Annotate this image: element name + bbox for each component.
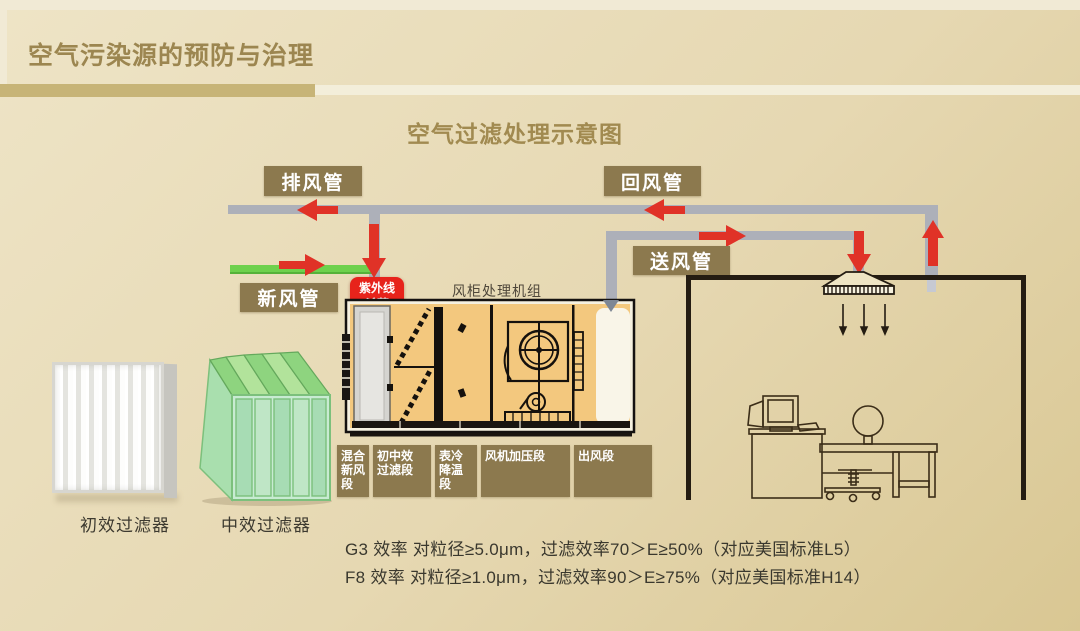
medium-filter-caption: 中效过滤器 <box>221 511 311 536</box>
note-line-g3: G3 效率 对粒径≥5.0μm，过滤效率70＞E≥50%（对应美国标准L5） <box>345 536 871 564</box>
ahu-section-label: 表冷 降温 段 <box>435 445 477 497</box>
left-edge-strip <box>0 0 7 85</box>
return-flow-arrow-icon <box>644 199 685 221</box>
medium-filter-image <box>192 350 342 508</box>
page-title: 空气污染源的预防与治理 <box>28 36 314 72</box>
supply-flow-arrow-icon <box>699 225 746 247</box>
ahu-section-label: 出风段 <box>574 445 652 497</box>
label-fresh-duct: 新风管 <box>240 283 338 312</box>
room-right-wall <box>1021 275 1026 500</box>
mix-down-arrow-icon <box>362 224 386 278</box>
efficiency-notes: G3 效率 对粒径≥5.0μm，过滤效率70＞E≥50%（对应美国标准L5） F… <box>345 536 871 592</box>
return-duct-stub <box>927 279 936 292</box>
ahu-drawing <box>340 294 640 440</box>
title-underline-gold <box>0 84 315 97</box>
room-return-up-arrow-icon <box>922 220 944 266</box>
supply-duct-riser <box>606 236 617 300</box>
label-return-duct: 回风管 <box>604 166 701 196</box>
label-exhaust-duct: 排风管 <box>264 166 362 196</box>
slide: { "slide": { "title": "空气污染源的预防与治理", "su… <box>0 0 1080 631</box>
workstation-drawing <box>740 385 945 505</box>
primary-filter-image <box>52 358 178 500</box>
ahu-section-label: 风机加压段 <box>481 445 570 497</box>
ceiling-diffuser-drawing <box>818 268 902 338</box>
room-left-wall <box>686 275 691 500</box>
note-line-f8: F8 效率 对粒径≥1.0μm，过滤效率90＞E≥75%（对应美国标准H14） <box>345 564 871 592</box>
top-edge-strip <box>0 0 1080 10</box>
ahu-section-label: 初中效 过滤段 <box>373 445 431 497</box>
title-underline-cream <box>315 85 1080 95</box>
fresh-flow-arrow-icon <box>279 254 325 276</box>
exhaust-flow-arrow-icon <box>297 199 338 221</box>
primary-filter-caption: 初效过滤器 <box>80 511 170 536</box>
diagram-title: 空气过滤处理示意图 <box>407 115 623 149</box>
label-supply-duct: 送风管 <box>633 246 730 275</box>
